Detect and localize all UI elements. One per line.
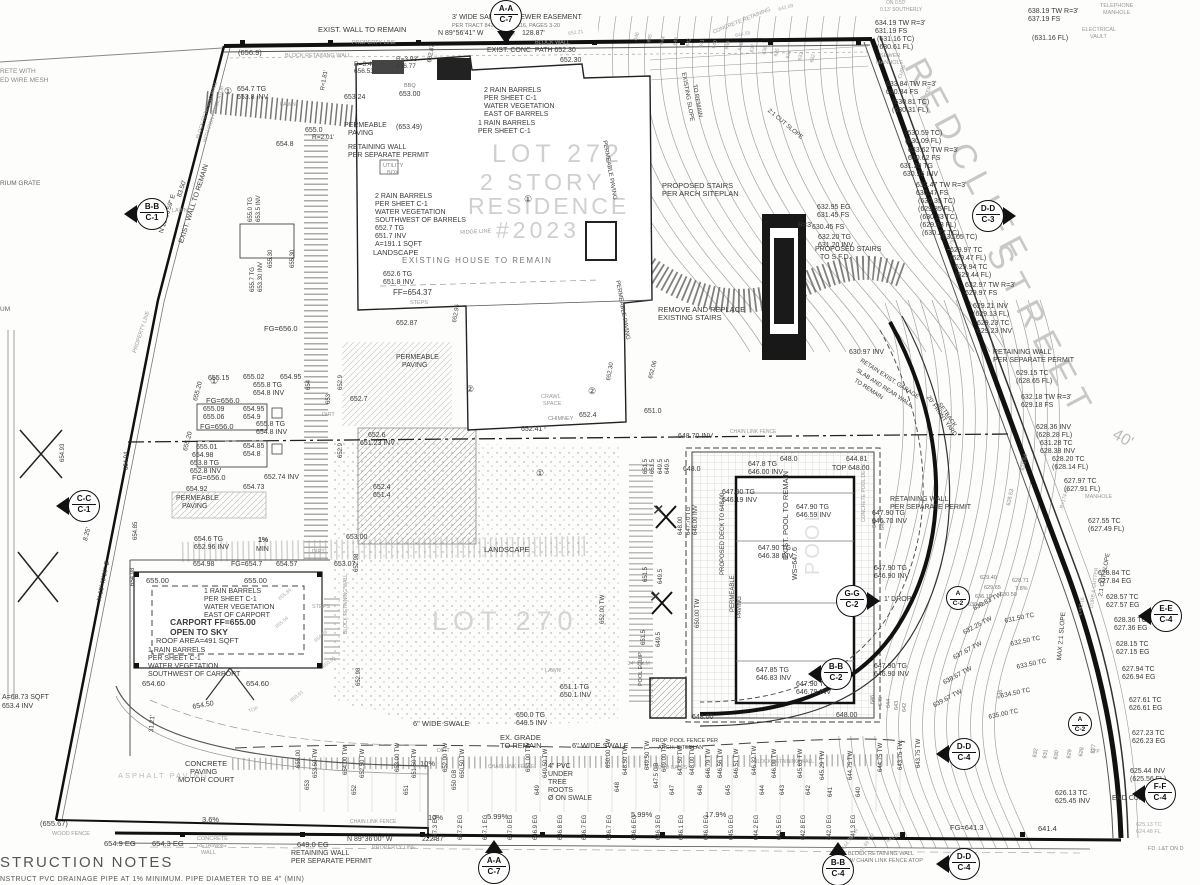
plan-label: 652.6 TG <box>383 271 412 279</box>
plan-label: 6" WIDE SWALE <box>413 720 470 728</box>
tree-mark: ✕ <box>652 503 665 520</box>
plan-label: BLOCK RETAINING WALL <box>344 574 350 634</box>
section-marker: B-BC-2 <box>820 658 852 690</box>
plan-label: 647.90 TG <box>874 565 907 573</box>
residence-label: RESIDENCE <box>468 194 629 220</box>
plan-label: 650.00 TW <box>606 739 613 768</box>
plan-label: 648.50 TW <box>623 746 630 775</box>
plan-label: 652.00 TW <box>443 743 450 772</box>
plan-label: 652 <box>352 785 359 795</box>
section-sheet-label: C-4 <box>952 862 976 872</box>
plan-label: FG=656.0 <box>206 397 240 405</box>
plan-label: 652.96 INV <box>194 544 229 552</box>
plan-label: PER SHEET C-1 <box>204 596 257 604</box>
pool-equipment-pad <box>650 678 686 718</box>
plan-label: 646.51 TW <box>734 749 741 778</box>
plan-label: 6" WIDE SWALE <box>572 742 629 750</box>
plan-label: 1 RAIN BARRELS <box>478 120 535 128</box>
section-cut-arrow <box>1132 785 1145 803</box>
plan-label: (630.59 TC) <box>905 130 942 138</box>
plan-label: 651.4 <box>373 492 391 500</box>
plan-label: 626.13 TC <box>1055 790 1088 798</box>
plan-label: 655.30 <box>268 250 275 268</box>
plan-label: WOOD GATES <box>653 766 687 772</box>
plan-label: SPACE <box>543 401 561 407</box>
section-cut-arrow <box>936 855 949 873</box>
wall-post <box>540 832 545 837</box>
plan-label: CHAIN LINK FENCE <box>730 430 776 436</box>
plan-label: 640 <box>856 787 863 797</box>
plan-label: (628.28 FL) <box>1036 432 1072 440</box>
wall-line <box>115 843 1090 849</box>
site-plan-drawing: STRUCTION NOTES NSTRUCT PVC DRAINAGE PIP… <box>0 0 1200 885</box>
plan-label: 655.06 <box>203 414 224 422</box>
plan-label: EAST OF BARRELS <box>484 111 548 119</box>
plan-label: FD. L&T ON D <box>1148 846 1184 852</box>
plan-label: 652.74 INV <box>264 474 299 482</box>
plan-label: 650.00 TW <box>695 599 702 628</box>
plan-label: 652.00 TW <box>600 595 607 624</box>
plan-label: 649.50 TW <box>645 741 652 770</box>
plan-label: 632.20 TG <box>818 234 851 242</box>
plan-label: (655.67) <box>40 820 68 828</box>
plan-label: EXIST. CONC. PATH 652.30 <box>487 47 576 55</box>
plan-label: 624.48 FL <box>1136 829 1161 835</box>
plan-label: 654.73 <box>243 484 264 492</box>
plan-label: 655.00 <box>296 750 303 768</box>
wall-post <box>328 40 333 45</box>
plan-label: 632.95 EG <box>817 204 850 212</box>
plan-label: PER ARCH SITEPLAN <box>662 190 739 198</box>
plan-label: 628.38 INV <box>1040 448 1075 456</box>
section-cut-arrow <box>867 592 880 610</box>
plan-label: 31.21' <box>148 715 157 733</box>
plan-label: (631.16 TC) <box>877 36 914 44</box>
section-sheet-label: C-2 <box>824 672 848 682</box>
section-marker-label: B-B <box>823 855 853 867</box>
plan-label: 654.00 TW <box>343 746 350 775</box>
swale-centerline <box>235 739 905 748</box>
section-marker: A-AC-7 <box>478 852 510 884</box>
plan-label: BLOCK RETAINING WALL <box>285 53 351 59</box>
plan-label: CHAIN LINK FENCE <box>488 765 534 771</box>
plan-label: 656.77 <box>396 63 416 70</box>
plan-label: 649.5 <box>658 459 665 474</box>
plan-label: 652.50 TW <box>360 749 367 778</box>
plan-label: 2 RAIN BARRELS <box>375 193 432 201</box>
plan-label: 643 <box>780 785 787 795</box>
plan-label: UTILITY <box>383 163 403 169</box>
plan-label: 654.7 TG <box>237 86 266 94</box>
plan-label: ED WIRE MESH <box>0 77 48 84</box>
section-sheet-label: C-4 <box>1148 792 1172 802</box>
plan-label: STEPS <box>410 300 428 306</box>
plan-label: 655.00 <box>146 577 169 585</box>
plan-label: WATER VEGETATION <box>484 103 555 111</box>
plan-label: 654.98 <box>193 561 214 569</box>
plan-label: MANHOLE <box>1103 10 1130 16</box>
plan-label: 648.00 TW <box>690 746 697 775</box>
plan-label: WS=647.6 <box>792 547 800 580</box>
plan-label: 631.30 TG <box>900 163 933 171</box>
plan-label: 646.70 INV <box>872 518 907 526</box>
section-marker: D-DC-3 <box>972 200 1004 232</box>
offsite-structure <box>8 330 14 700</box>
plan-label: 651.0 <box>644 408 662 416</box>
plan-label: 649.0 EG <box>297 841 329 849</box>
plan-label: 655.00 <box>244 577 267 585</box>
tree-mark: ✕ <box>649 590 662 607</box>
plan-label: 649 <box>535 785 542 795</box>
section-marker: G-GC-2 <box>836 585 868 617</box>
plan-label: 7.8% <box>1015 586 1028 592</box>
plan-label: PERMEABLE <box>396 354 439 362</box>
plan-label: 643.75 TW <box>916 739 923 768</box>
plan-label: 654.92 <box>186 486 207 494</box>
plan-label: 652.7 <box>350 396 368 404</box>
plan-label: 631.45 FS <box>817 212 849 220</box>
plan-label: 653 <box>326 394 333 404</box>
plan-label: 654.95 <box>243 406 264 414</box>
plan-label: 650 GB <box>452 770 459 790</box>
section-sheet-label: C-4 <box>1154 614 1178 624</box>
plan-label: 630.50 <box>1000 592 1017 598</box>
plan-label: 630.97 INV <box>849 349 884 357</box>
plan-label: 649.5 INV <box>516 720 547 728</box>
section-marker: C-CC-1 <box>68 490 100 522</box>
plan-label: R=3' <box>798 222 812 230</box>
plan-label: 653 <box>305 780 312 790</box>
plan-label: 651 <box>404 785 411 795</box>
pool-label: POOL <box>802 507 824 575</box>
section-marker-label: D-D <box>949 739 979 751</box>
plan-label: RETAINING WALL <box>890 496 948 504</box>
plan-label: 650.0 TG <box>516 712 545 720</box>
plan-label: 645 <box>878 697 884 706</box>
plan-label: 634.19 TW R=3' <box>875 20 925 28</box>
plan-label: R=2.01' <box>312 134 334 141</box>
plan-label: BLOCK RETAINING WALL <box>754 760 814 766</box>
wall-post <box>300 832 305 837</box>
plan-label: 654.8 <box>243 451 261 459</box>
construction-note-line: NSTRUCT PVC DRAINAGE PIPE AT 1% MINIMUM.… <box>0 876 304 883</box>
plan-label: 646.00 INV <box>748 469 783 477</box>
plan-label: 646.90 INV <box>874 573 909 581</box>
plan-label: 636.18 <box>975 594 992 600</box>
plan-label: MIN <box>256 546 269 554</box>
plan-label: PROPERTY LINE <box>352 40 396 46</box>
plan-label: 627.15 EG <box>1116 649 1149 657</box>
plan-label: PERMEABLE <box>344 122 387 130</box>
plan-label: 627.36 EG <box>1114 625 1147 633</box>
plan-label: 627.97 TC <box>1064 478 1097 486</box>
plan-label: STEPS <box>312 604 330 610</box>
plan-label: (629.83 FL) <box>920 222 956 230</box>
plan-label: 650.1 INV <box>560 692 591 700</box>
plan-label: FG=656.0 <box>264 325 298 333</box>
plan-label: 654.98 <box>192 452 213 460</box>
plan-label: 646.79 TW <box>706 749 713 778</box>
plan-label: 629.97 FS <box>965 290 997 298</box>
plan-label: 649.5 <box>665 459 672 474</box>
plan-label: 629.18 FS <box>1021 402 1053 410</box>
plan-label: 645 <box>726 785 733 795</box>
plan-label: 651.23 INV <box>360 440 395 448</box>
plan-label: CONCRETE POOL DECK <box>862 464 868 522</box>
plan-label: 633.84 TW R=3' <box>886 81 936 89</box>
plan-label: LAWN <box>172 208 188 214</box>
plan-label: 647.85 TG <box>756 667 789 675</box>
plan-label: FG=641.3 <box>950 824 984 832</box>
plan-label: 637.19 FS <box>1028 16 1060 24</box>
plan-label: 646.7 EG <box>582 815 589 840</box>
section-cut-arrow <box>124 205 137 223</box>
plan-label: 652.9 <box>338 443 345 458</box>
plan-label: 17.9% <box>705 811 726 819</box>
plan-label: FG=656.0 <box>200 423 234 431</box>
section-marker: B-BC-1 <box>136 198 168 230</box>
plan-label: FG=654.7 <box>231 561 262 569</box>
plan-label: MANHOLE <box>1085 494 1112 500</box>
plan-label: (629.44 FL) <box>955 272 991 280</box>
plan-label: PER SEPARATE PERMIT <box>348 152 429 160</box>
plan-label: PER SEPARATE PERMIT <box>291 858 372 866</box>
plan-label: FG=656.0 <box>192 474 226 482</box>
section-cut-arrow <box>808 665 821 683</box>
plan-label: 647.2 EG <box>458 815 465 840</box>
plan-label: PER SHEET C-1 <box>478 128 531 136</box>
plan-label: 628.57 TC <box>1106 594 1139 602</box>
plan-label: BLOCK WALL <box>535 40 570 46</box>
plan-label: 626.23 EG <box>1132 738 1165 746</box>
plan-label: 629.21 INV <box>973 303 1008 311</box>
plan-label: 10% <box>420 760 435 768</box>
plan-label: 653.00 <box>346 534 367 542</box>
lot-270-label: LOT 270 <box>432 606 579 636</box>
plan-label: 654.9 EG <box>104 840 136 848</box>
plan-label: 631.28 TC <box>1040 440 1073 448</box>
plan-label: 10% <box>428 814 443 822</box>
plan-label: PER SHEET C-1 <box>484 95 537 103</box>
plan-label: LAWN <box>280 102 296 108</box>
plan-label: 651.1 TG <box>560 684 589 692</box>
plan-label: ON 0.50' <box>886 1 906 7</box>
property-bearing-bottom: N 89°36'00" W <box>347 836 393 844</box>
plan-label: A=68.73 SQFT <box>2 694 49 702</box>
plan-label: 646.8 EG <box>558 815 565 840</box>
plan-label: 655.02 <box>243 374 264 382</box>
plan-label: PROPERTY LINE <box>372 845 416 851</box>
plan-label: 1 RAIN BARRELS <box>148 647 205 655</box>
section-sheet-label: C-1 <box>140 212 164 222</box>
plan-label: 655.8 TG <box>256 421 285 429</box>
plan-label: 628.36 INV <box>1036 424 1071 432</box>
plan-label: 654.8 INV <box>256 429 287 437</box>
plan-label: 642 <box>806 785 813 795</box>
plan-label: Ø ON SWALE <box>548 795 592 803</box>
plan-label: DIRT <box>322 412 335 418</box>
plan-label: PAVING <box>348 130 373 138</box>
plan-label: 647.90 TG <box>874 663 907 671</box>
plan-label: 24" PALM <box>628 662 650 668</box>
plan-label: BBQ <box>404 83 416 89</box>
plan-label: 647 <box>670 785 677 795</box>
residence-label: 2 STORY <box>480 170 606 196</box>
plan-label: RETE WITH <box>0 68 36 75</box>
plan-label: 644 <box>886 699 892 708</box>
plan-label: 641 <box>828 787 835 797</box>
plan-label: 646.3 EG <box>656 815 663 840</box>
plan-label: TREE <box>548 779 567 787</box>
plan-label: PAVING <box>737 596 744 618</box>
plan-linework <box>0 0 1200 885</box>
plan-label: 632.47 TW R=3' <box>916 182 966 190</box>
plan-label: 643.75 TW <box>898 741 905 770</box>
plan-label: 643.5 EG <box>777 815 784 840</box>
plan-label: 636.83 <box>968 602 985 608</box>
residence-label: #2023 <box>496 218 580 244</box>
plan-label: WATER VEGETATION <box>375 209 446 217</box>
section-marker-label: C-C <box>69 491 99 503</box>
plan-label: 646.9 EG <box>533 815 540 840</box>
plan-label: 645.29 TW <box>820 751 827 780</box>
plan-label: 648 <box>615 782 622 792</box>
plan-label: 1% <box>258 537 268 545</box>
plan-label: PER SEPARATE PERMIT <box>890 504 971 512</box>
section-marker-label: A <box>1069 713 1091 724</box>
plan-label: 1 RAIN BARRELS <box>204 588 261 596</box>
plan-label: PERMEABLE <box>730 575 737 612</box>
plan-label: SOUTHWEST OF CARPORT <box>148 671 240 679</box>
plan-label: 644.75 TW <box>878 743 885 772</box>
plan-label: 629.97 TC <box>950 247 983 255</box>
plan-label: PAVING <box>182 503 207 511</box>
wall-post <box>180 832 185 837</box>
plan-label: 652.87 <box>396 320 417 328</box>
plan-label: 630.47 FS <box>916 190 948 198</box>
plan-label: EXIST. WALL TO REMAIN <box>318 26 406 34</box>
plan-label: 653.07 <box>334 561 355 569</box>
plan-label: 631.19 FS <box>875 28 907 36</box>
plan-label: 629.23 TC <box>977 320 1010 328</box>
wall-post <box>416 40 421 45</box>
plan-label: SEWER <box>880 53 900 59</box>
plan-label: 642.8 EG <box>801 815 808 840</box>
plan-label: (628.14 FL) <box>1052 464 1088 472</box>
plan-label: 654.3 EG <box>152 840 184 848</box>
plan-label: ① <box>210 376 218 386</box>
section-marker: F-FC-4 <box>1144 778 1176 810</box>
plan-label: 5.99% <box>487 813 508 821</box>
plan-label: (630.81 TC) <box>892 99 929 107</box>
pool-label: EXIST. POOL TO REMAIN <box>782 471 790 560</box>
plan-label: WATER VEGETATION <box>204 604 275 612</box>
wall-post <box>240 40 245 45</box>
garage-inner <box>774 238 794 324</box>
plan-label: 654.85 <box>243 443 264 451</box>
planter-box <box>240 224 294 258</box>
section-marker-label: B-B <box>821 659 851 671</box>
plan-label: (630.61 FL) <box>877 44 913 52</box>
plan-label: 646.90 INV <box>874 671 909 679</box>
post <box>317 572 322 577</box>
plan-label: SOUTHWEST OF BARRELS <box>375 217 466 225</box>
plan-label: PER SEPARATE PERMIT <box>993 357 1074 365</box>
plan-label: 630.84 FS <box>886 89 918 97</box>
plan-label: 627.57 EG <box>1106 602 1139 610</box>
plan-label: WALL <box>201 850 216 856</box>
plan-label: 647.8 TG <box>748 461 777 469</box>
wall-post <box>592 40 597 45</box>
finished-floor-label: FF=654.37 <box>393 289 432 298</box>
plan-label: 653.4 INV <box>2 703 33 711</box>
plan-label: 651.8 INV <box>383 279 414 287</box>
plan-label: TO REMAIN <box>500 742 542 750</box>
section-marker-label: D-D <box>949 849 979 861</box>
bbq <box>437 58 471 80</box>
plan-label: 655.30 <box>290 250 297 268</box>
plan-label: (630.33 TC) <box>920 214 957 222</box>
plan-label: 626.61 EG <box>1129 705 1162 713</box>
plan-label: 651.7 INV <box>375 233 406 241</box>
plan-label: LANDSCAPE <box>484 546 529 554</box>
section-cut-arrow <box>936 745 949 763</box>
plan-label: 653.50 TW <box>313 749 320 778</box>
plan-label: (653.49) <box>396 124 422 132</box>
plan-label: PER SHEET C-1 <box>375 201 428 209</box>
plan-label: N 89°56'41" W <box>438 30 484 38</box>
plan-label: ① <box>524 194 532 204</box>
plan-label: (629.47 FL) <box>950 255 986 263</box>
plan-label: TO S.F.D. <box>820 254 851 262</box>
plan-label: 655.0 TG <box>248 197 255 222</box>
plan-label: 2 RAIN BARRELS <box>484 87 541 95</box>
section-marker-label: D-D <box>973 201 1003 213</box>
plan-label: ② <box>466 384 474 394</box>
plan-label: CHAIN LINK FENCE <box>350 820 396 826</box>
plan-label: 652.41 <box>521 426 542 434</box>
plan-label: CHIMNEY <box>548 416 573 422</box>
plan-label: 654.60 <box>142 680 165 688</box>
plan-label: 631.20 INV <box>818 242 853 250</box>
plan-label: 632.97 TW R=3' <box>965 282 1015 290</box>
plan-label: 653.00 <box>399 91 420 99</box>
section-marker: A-AC-7 <box>490 0 522 32</box>
section-marker: AC-2 <box>946 586 970 610</box>
plan-label: 645.0 EG <box>729 815 736 840</box>
plan-label: 652.4 <box>373 484 391 492</box>
wall-post <box>856 40 861 45</box>
section-sheet-label: C-2 <box>950 599 966 608</box>
plan-label: 641.4 <box>1038 825 1057 833</box>
plan-label: 654.93 <box>60 444 67 462</box>
plan-label: MANHOLE <box>876 60 903 66</box>
plan-label: 627.55 TC <box>1088 518 1121 526</box>
plan-label: 653.8 INV <box>237 94 268 102</box>
plan-label: 652.7 TG <box>375 225 404 233</box>
plan-label: 646.83 INV <box>756 675 791 683</box>
plan-label: 652.30 <box>560 57 581 65</box>
plan-label: 653.8 TG <box>190 460 219 468</box>
plan-label: 655.7 TG <box>250 267 257 292</box>
plan-label: 629.15 TC <box>1016 370 1049 378</box>
plan-label: 655.09 <box>203 406 224 414</box>
section-sheet-label: C-7 <box>482 866 506 876</box>
plan-label: 653.5 INV <box>256 195 263 222</box>
plan-label: 626.94 EG <box>1122 674 1155 682</box>
plan-label: EXISTING STAIRS <box>658 314 722 322</box>
plan-label: 651.50 TW <box>412 749 419 778</box>
